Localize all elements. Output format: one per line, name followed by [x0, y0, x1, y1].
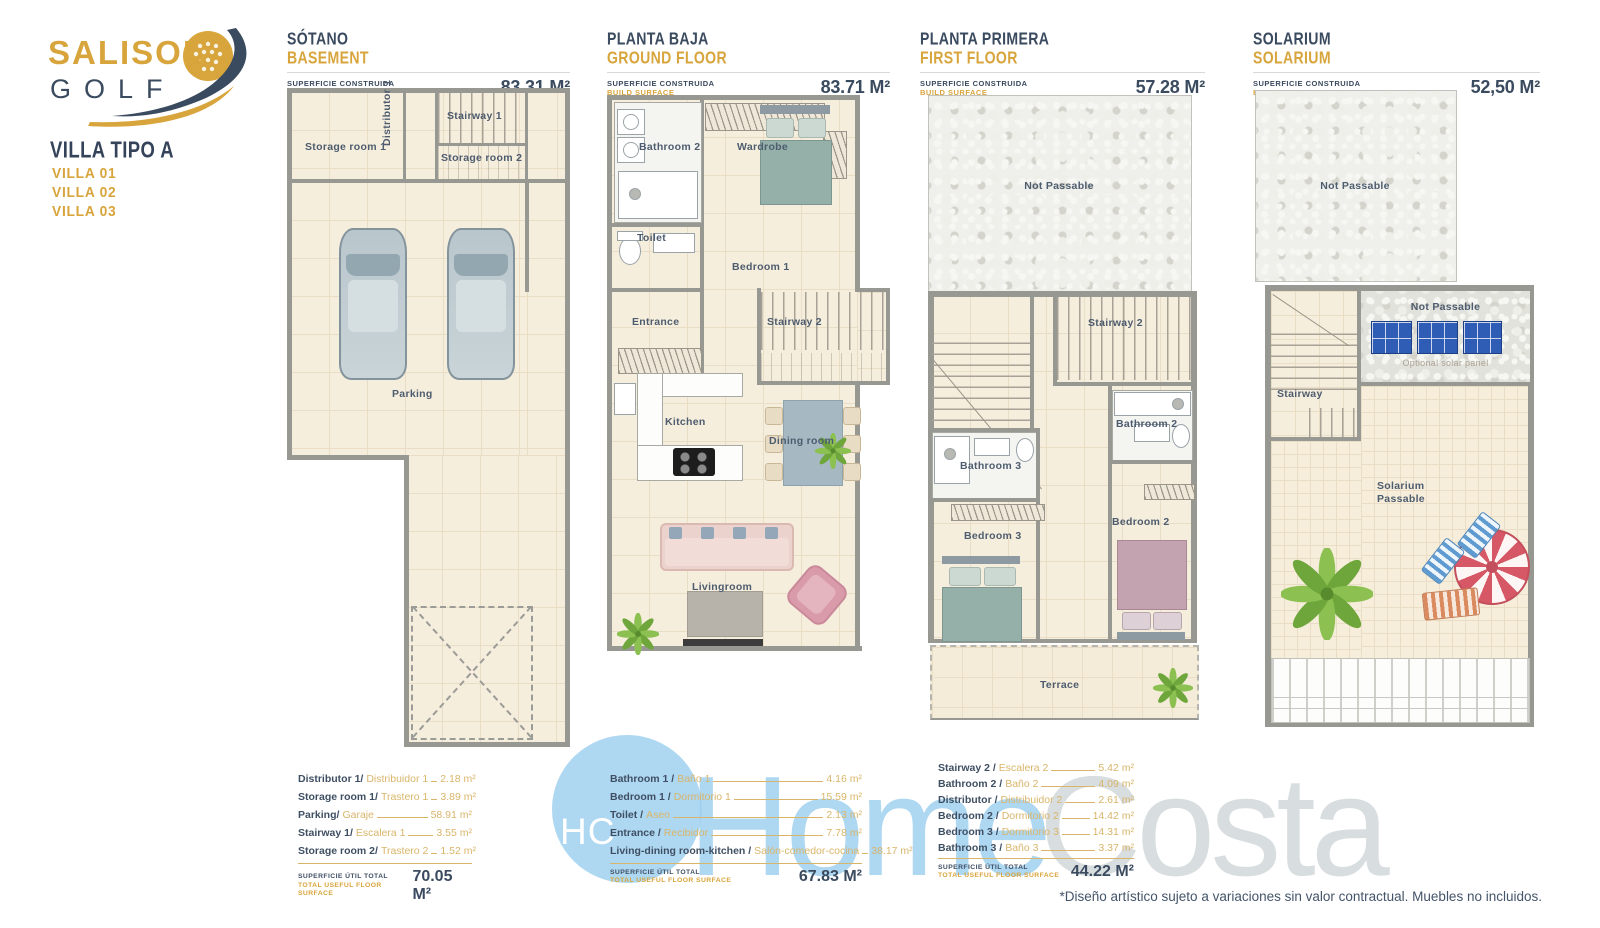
legend-value: 4.09 m² — [1098, 778, 1134, 790]
legend-es: Dormitorio 1 — [674, 791, 731, 803]
wall — [1271, 437, 1361, 441]
sink-basin-icon — [623, 114, 639, 130]
leader-line — [431, 781, 437, 782]
legend-row: Storage room 2/Trastero 21.52 m² — [298, 845, 472, 857]
legend-row: Bathroom 2 /Baño 24.09 m² — [938, 778, 1134, 790]
total-label-es: SUPERFICIE ÚTIL TOTAL — [610, 869, 731, 878]
wall — [565, 88, 570, 747]
room-label-not-passable-top: Not Passable — [1255, 180, 1455, 192]
legend-value: 4.16 m² — [826, 773, 862, 785]
legend-row: Parking/Garaje58.91 m² — [298, 809, 472, 821]
floor-title-es: SOLARIUM — [1253, 30, 1506, 50]
stairway-treads — [1309, 408, 1357, 437]
wall — [287, 455, 409, 460]
room-label-toilet: Toilet — [637, 232, 666, 244]
total-label-en: TOTAL USEFUL FLOOR SURFACE — [938, 872, 1059, 881]
leader-line — [673, 817, 823, 818]
brand-subname: GOLF — [50, 74, 176, 105]
bed-duvet — [942, 587, 1022, 642]
villa-02-label: VILLA 02 — [52, 184, 116, 201]
legend-row: Distributor /Distribuidor 22.61 m² — [938, 794, 1134, 806]
legend-value: 58.91 m² — [431, 809, 472, 821]
room-label-bedroom3: Bedroom 3 — [964, 530, 1022, 542]
wall — [757, 381, 855, 385]
legend-es: Escalera 2 — [999, 762, 1049, 774]
legend-row: Stairway 2 /Escalera 25.42 m² — [938, 762, 1134, 774]
wall — [611, 288, 700, 292]
floor-area — [527, 182, 566, 455]
coffee-table-icon — [687, 591, 763, 637]
legend-en: Bedroom 3 / — [938, 826, 999, 838]
legend-es: Distribuidor 1 — [366, 773, 428, 785]
legend-row: Distributor 1/Distribuidor 12.18 m² — [298, 773, 472, 785]
legend-es: Trastero 1 — [381, 791, 428, 803]
bed-pillow — [766, 118, 794, 138]
sofa-pillow-icon — [701, 527, 714, 539]
leader-line — [1065, 802, 1095, 803]
sink-icon — [974, 438, 1010, 456]
total-label-es: SUPERFICIE ÚTIL TOTAL — [298, 873, 412, 882]
legend-row: Entrance /Recibidor7.78 m² — [610, 827, 862, 839]
divider — [1253, 72, 1540, 73]
legend-total: SUPERFICIE ÚTIL TOTAL TOTAL USEFUL FLOOR… — [610, 863, 862, 886]
wardrobe-hatch — [951, 504, 1045, 521]
leader-line — [1062, 818, 1090, 819]
wall — [404, 742, 570, 747]
leader-line — [431, 799, 437, 800]
solar-panel-icon — [1371, 321, 1412, 354]
room-label-not-passable-panels: Not Passable — [1361, 301, 1530, 313]
legend-ground-floor: Bathroom 1 /Baño 14.16 m² Bedroom 1 /Dor… — [610, 773, 862, 886]
floor-title-en: SOLARIUM — [1253, 49, 1506, 69]
room-label-kitchen: Kitchen — [665, 416, 706, 428]
chair-icon — [765, 407, 783, 425]
room-label-bedroom1: Bedroom 1 — [732, 261, 790, 273]
floorplan-ground-floor: Bathroom 2 Wardrobe Toilet Bedroom 1 Ent… — [607, 95, 890, 651]
leader-line — [377, 817, 428, 818]
room-label-dining: Dining room — [769, 435, 834, 447]
legend-es: Garaje — [342, 809, 374, 821]
legend-es: Distribuidor 2 — [1001, 794, 1063, 806]
tv-icon — [683, 639, 763, 646]
chair-icon — [765, 463, 783, 481]
bed-icon — [1117, 540, 1185, 640]
total-label-es: SUPERFICIE ÚTIL TOTAL — [938, 864, 1059, 873]
shower-drain-icon — [944, 448, 956, 460]
floor-title-es: SÓTANO — [287, 30, 536, 50]
legend-es: Baño 3 — [1005, 842, 1038, 854]
legend-value: 5.42 m² — [1098, 762, 1134, 774]
wall — [1361, 382, 1530, 386]
legend-en: Stairway 1/ — [298, 827, 353, 839]
room-label-not-passable: Not Passable — [928, 180, 1190, 192]
wall — [287, 88, 292, 459]
shower-drain-icon — [629, 188, 641, 200]
pergola-slats — [1271, 658, 1530, 723]
leader-line — [1041, 786, 1095, 787]
legend-row: Bedroom 3 /Dormitorio 314.31 m² — [938, 826, 1134, 838]
legend-row: Bedroom 2 /Dormitorio 214.42 m² — [938, 810, 1134, 822]
wall — [403, 92, 406, 179]
villa-01-label: VILLA 01 — [52, 165, 116, 182]
legend-en: Storage room 2/ — [298, 845, 378, 857]
legend-value: 2.18 m² — [440, 773, 476, 785]
room-label-stairway2: Stairway 2 — [1088, 317, 1143, 329]
legend-es: Recibidor — [664, 827, 708, 839]
leader-line — [862, 853, 868, 854]
legend-en: Bathroom 2 / — [938, 778, 1002, 790]
villa-type-title: VILLA TIPO A — [50, 138, 174, 164]
legend-es: Salón-comedor-cocina — [754, 845, 859, 857]
disclaimer-text: *Diseño artístico sujeto a variaciones s… — [1060, 889, 1543, 904]
entrance-closet-hatch — [618, 348, 702, 374]
garage-ramp — [411, 606, 533, 740]
solar-panel-icon — [1463, 321, 1502, 354]
legend-row: Living-dining room-kitchen /Salón-comedo… — [610, 845, 862, 857]
bed-headboard — [1117, 632, 1185, 640]
chair-icon — [843, 407, 861, 425]
legend-first-floor: Stairway 2 /Escalera 25.42 m² Bathroom 2… — [938, 762, 1134, 881]
room-label-bedroom2: Bedroom 2 — [1112, 516, 1170, 528]
gravel-area — [928, 95, 1192, 292]
bed-pillow — [798, 118, 826, 138]
legend-basement: Distributor 1/Distribuidor 12.18 m² Stor… — [298, 773, 472, 904]
legend-value: 1.52 m² — [440, 845, 476, 857]
room-label-wardrobe: Wardrobe — [737, 141, 788, 153]
floorplan-basement: Storage room 1 Distributor 1 Stairway 1 … — [287, 88, 570, 748]
total-label-en: TOTAL USEFUL FLOOR SURFACE — [610, 877, 731, 886]
legend-es: Aseo — [646, 809, 670, 821]
wall — [1036, 428, 1040, 643]
surface-label-es: SUPERFICIE CONSTRUIDA — [1253, 79, 1361, 88]
sofa-pillow-icon — [669, 527, 682, 539]
legend-en: Distributor / — [938, 794, 998, 806]
leader-line — [734, 799, 818, 800]
room-label-storage1: Storage room 1 — [305, 141, 386, 153]
divider — [920, 72, 1205, 73]
villa-03-label: VILLA 03 — [52, 203, 116, 220]
floor-title-en: FIRST FLOOR — [920, 49, 1171, 69]
surface-label-es: SUPERFICIE CONSTRUIDA — [287, 79, 395, 88]
bed-pillow — [1153, 612, 1182, 630]
bed-icon — [760, 105, 830, 203]
label-optional-solar-panel: Optional solar panel — [1361, 358, 1530, 368]
leader-line — [713, 781, 823, 782]
leader-line — [408, 835, 433, 836]
wall — [855, 381, 890, 385]
legend-row: Storage room 1/Trastero 13.89 m² — [298, 791, 472, 803]
legend-en: Living-dining room-kitchen / — [610, 845, 751, 857]
bed-icon — [942, 556, 1020, 640]
legend-es: Baño 1 — [677, 773, 710, 785]
legend-total: SUPERFICIE ÚTIL TOTAL TOTAL USEFUL FLOOR… — [938, 858, 1134, 881]
wall — [1108, 386, 1112, 643]
legend-en: Storage room 1/ — [298, 791, 378, 803]
leader-line — [1062, 834, 1090, 835]
surface-label-es: SUPERFICIE CONSTRUIDA — [920, 79, 1028, 88]
legend-value: 38.17 m² — [871, 845, 912, 857]
faucet-icon — [1172, 398, 1184, 410]
floor-title-en: GROUND FLOOR — [607, 49, 856, 69]
wall — [1030, 295, 1034, 435]
bed-headboard — [760, 105, 830, 114]
room-label-solarium-1: Solarium — [1377, 480, 1424, 492]
wall — [886, 288, 890, 385]
room-label-storage2: Storage room 2 — [441, 152, 522, 164]
bed-pillow — [949, 567, 981, 586]
wardrobe-hatch — [1144, 484, 1195, 500]
surface-label-es: SUPERFICIE CONSTRUIDA — [607, 79, 715, 88]
wall — [1053, 295, 1057, 384]
room-label-distributor: Distributor 1 — [381, 80, 393, 146]
room-label-living: Livingroom — [692, 581, 752, 593]
toilet-icon — [1016, 438, 1034, 462]
bed-pillow — [984, 567, 1016, 586]
leader-line — [1051, 770, 1095, 771]
wall — [404, 455, 409, 747]
total-label-en: TOTAL USEFUL FLOOR SURFACE — [298, 882, 412, 899]
legend-row: Bathroom 3 /Baño 33.37 m² — [938, 842, 1134, 854]
legend-es: Trastero 2 — [381, 845, 428, 857]
room-label-bathroom2: Bathroom 2 — [1116, 418, 1177, 430]
legend-value: 2.13 m² — [826, 809, 862, 821]
fridge-icon — [614, 383, 636, 415]
stairway-2-dashed — [761, 353, 886, 381]
floor-title-en: BASEMENT — [287, 49, 536, 69]
leader-line — [711, 835, 823, 836]
salisol-golf-logo: SALISOL GOLF — [48, 28, 263, 128]
wall — [1108, 460, 1197, 464]
lounger-icon — [1422, 587, 1481, 621]
sofa-pillow-icon — [733, 527, 746, 539]
legend-value: 2.61 m² — [1098, 794, 1134, 806]
brand-name: SALISOL — [48, 34, 205, 72]
legend-en: Bedroom 2 / — [938, 810, 999, 822]
sink-basin-icon — [623, 142, 639, 158]
legend-es: Baño 2 — [1005, 778, 1038, 790]
wall — [607, 95, 859, 100]
wall — [611, 223, 700, 227]
leader-line — [431, 853, 437, 854]
bed-pillow — [1122, 612, 1151, 630]
legend-value: 7.78 m² — [826, 827, 862, 839]
solar-panel-icon — [1417, 321, 1458, 354]
plant-icon — [1153, 668, 1193, 708]
legend-value: 3.89 m² — [440, 791, 476, 803]
divider — [607, 72, 890, 73]
legend-en: Stairway 2 / — [938, 762, 996, 774]
wall — [928, 498, 1040, 502]
wall — [607, 95, 612, 651]
room-label-stairway: Stairway — [1277, 388, 1323, 400]
bed-duvet — [1117, 540, 1187, 610]
floorplan-first-floor: Not Passable — [920, 88, 1205, 720]
legend-row: Stairway 1/Escalera 13.55 m² — [298, 827, 472, 839]
wall — [1053, 382, 1195, 386]
room-label-stairway2: Stairway 2 — [767, 316, 822, 328]
room-label-bathroom2: Bathroom 2 — [639, 141, 700, 153]
legend-en: Toilet / — [610, 809, 643, 821]
legend-row: Bathroom 1 /Baño 14.16 m² — [610, 773, 862, 785]
divider — [287, 72, 570, 73]
legend-es: Escalera 1 — [356, 827, 406, 839]
wall — [928, 428, 1038, 432]
brochure-page: SALISOL GOLF VILLA TIPO A VILLA 01 VILLA… — [0, 0, 1600, 928]
total-value: 70.05 M² — [412, 868, 472, 904]
leader-line — [1041, 850, 1095, 851]
legend-es: Dormitorio 3 — [1002, 826, 1059, 838]
watermark-monogram: HC — [560, 811, 615, 853]
total-value: 44.22 M² — [1071, 863, 1134, 881]
legend-value: 14.31 m² — [1093, 826, 1134, 838]
stairway-treads — [1271, 326, 1357, 390]
room-label-stairway1: Stairway 1 — [447, 110, 502, 122]
car-icon — [339, 228, 407, 380]
room-label-parking: Parking — [392, 388, 433, 400]
legend-value: 15.59 m² — [821, 791, 862, 803]
legend-en: Parking/ — [298, 809, 339, 821]
legend-es: Dormitorio 2 — [1002, 810, 1059, 822]
legend-value: 3.37 m² — [1098, 842, 1134, 854]
legend-en: Bedroom 1 / — [610, 791, 671, 803]
plant-icon — [617, 613, 659, 655]
room-label-entrance: Entrance — [632, 316, 679, 328]
room-label-terrace: Terrace — [1040, 679, 1079, 691]
room-label-bathroom3: Bathroom 3 — [960, 460, 1021, 472]
room-label-solarium-2: Passable — [1377, 493, 1425, 505]
car-icon — [447, 228, 515, 380]
legend-row: Bedroom 1 /Dormitorio 115.59 m² — [610, 791, 862, 803]
total-value: 67.83 M² — [799, 868, 862, 886]
wall — [525, 92, 528, 179]
legend-value: 14.42 m² — [1093, 810, 1134, 822]
cooktop-icon — [673, 448, 715, 476]
pergola-beam — [1272, 697, 1529, 709]
floor-title-es: PLANTA BAJA — [607, 30, 856, 50]
floorplan-solarium: Not Passable Not Passable Optional solar… — [1253, 88, 1540, 733]
legend-en: Entrance / — [610, 827, 661, 839]
legend-row: Toilet /Aseo2.13 m² — [610, 809, 862, 821]
wall — [525, 182, 529, 292]
floor-title-es: PLANTA PRIMERA — [920, 30, 1171, 50]
wall — [855, 95, 860, 292]
palm-icon — [1281, 548, 1373, 640]
sofa-pillow-icon — [765, 527, 778, 539]
legend-en: Distributor 1/ — [298, 773, 363, 785]
header-ground-floor: PLANTA BAJA GROUND FLOOR SUPERFICIE CONS… — [607, 30, 890, 98]
legend-en: Bathroom 3 / — [938, 842, 1002, 854]
legend-total: SUPERFICIE ÚTIL TOTAL TOTAL USEFUL FLOOR… — [298, 863, 472, 904]
bed-headboard — [942, 556, 1020, 564]
stairway-2-treads — [1057, 297, 1193, 380]
legend-en: Bathroom 1 / — [610, 773, 674, 785]
legend-value: 3.55 m² — [436, 827, 472, 839]
